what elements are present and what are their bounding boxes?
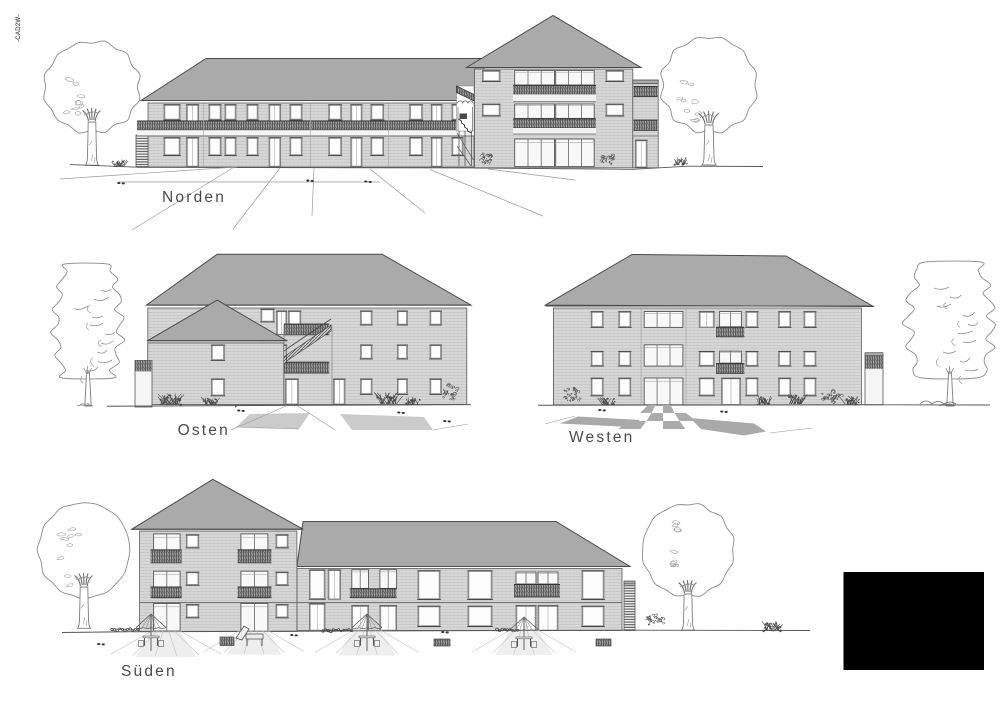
svg-text:-CAD2W-: -CAD2W- [16, 14, 22, 42]
svg-text:Osten: Osten [178, 422, 230, 439]
svg-text:Süden: Süden [121, 663, 177, 680]
svg-text:Norden: Norden [162, 189, 226, 206]
svg-text:Westen: Westen [569, 429, 634, 446]
